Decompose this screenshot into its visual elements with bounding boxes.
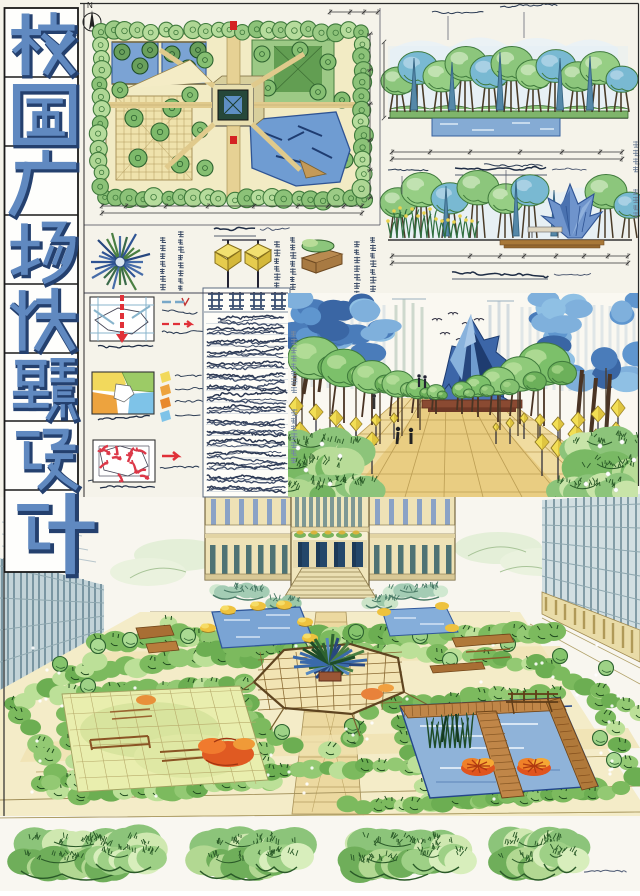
svg-text:N: N [87, 1, 93, 10]
